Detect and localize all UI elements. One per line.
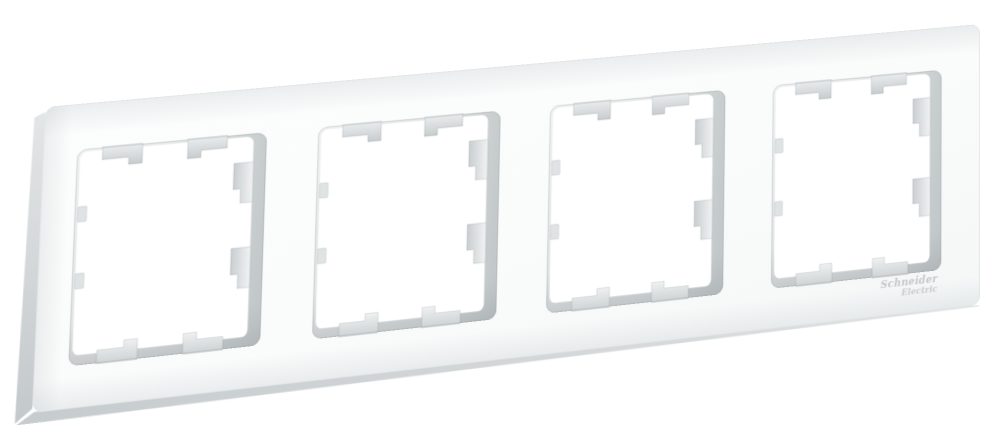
switch-frame: Schneider Electric [32,24,980,413]
frame-window [312,110,501,340]
frame-window [771,69,942,289]
frame-window [68,132,267,367]
frame-window [546,89,725,314]
product-photo: Schneider Electric [0,0,1000,434]
